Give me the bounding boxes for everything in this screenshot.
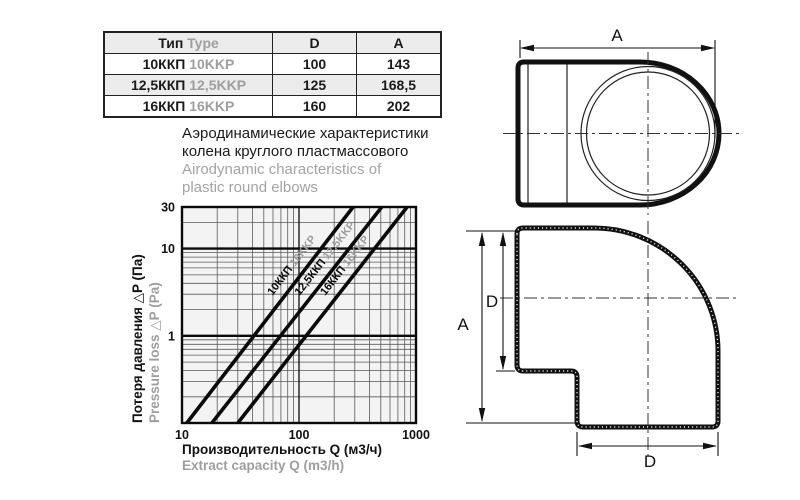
col-header-type: Тип Type — [104, 32, 273, 54]
dim-label-d: D — [486, 292, 498, 311]
d-cell: 125 — [273, 75, 357, 96]
type-en: 12,5KKP — [189, 77, 246, 93]
dim-label-a: A — [611, 26, 623, 45]
col-header-a: A — [357, 32, 442, 54]
type-dimensions-table: Тип Type D A 10ККП 10KKP 100 143 12,5ККП… — [103, 31, 442, 118]
elbow-side-view: A D D — [457, 221, 738, 471]
type-cell: 16ККП 16KKP — [104, 96, 273, 118]
elbow-side-view-outline — [517, 228, 718, 427]
dim-label-d: D — [644, 452, 656, 471]
x-axis-title-en: Extract capacity Q (m3/h) — [182, 458, 344, 473]
a-cell: 168,5 — [357, 75, 442, 96]
pressure-loss-chart: 10ККП 10KKP12,5ККП 12,5KKP16ККП 16KKP301… — [100, 190, 450, 490]
type-ru: 16ККП — [143, 98, 186, 114]
y-tick-label: 1 — [168, 329, 175, 343]
table-row: 10ККП 10KKP 100 143 — [104, 54, 441, 75]
x-tick-label: 100 — [289, 428, 310, 442]
x-tick-label: 1000 — [402, 428, 430, 442]
table-row: 16ККП 16KKP 160 202 — [104, 96, 441, 118]
chart-title: Аэродинамические характеристики колена к… — [182, 125, 428, 197]
elbow-top-view: A — [503, 26, 742, 215]
a-cell: 202 — [357, 96, 442, 118]
y-tick-label: 30 — [161, 201, 175, 215]
y-axis-title-en: Pressure loss △P (Pa) — [147, 282, 162, 423]
dimension-d-inlet: D — [486, 233, 515, 371]
type-en: 16KKP — [189, 98, 234, 114]
type-ru: 10ККП — [143, 56, 186, 72]
y-axis-title-ru: Потеря давления △P (Па) — [130, 254, 145, 423]
type-header-ru: Тип — [158, 35, 183, 51]
type-en: 10KKP — [189, 56, 234, 72]
type-header-en: Type — [187, 35, 219, 51]
dim-label-a: A — [457, 315, 469, 334]
a-cell: 143 — [357, 54, 442, 75]
chart-title-ru-2: колена круглого пластмассового — [182, 143, 428, 161]
type-cell: 12,5ККП 12,5KKP — [104, 75, 273, 96]
technical-drawings: A A D D — [450, 10, 760, 490]
x-tick-label: 10 — [175, 428, 189, 442]
d-cell: 100 — [273, 54, 357, 75]
chart-title-en-1: Airodynamic characteristics of — [182, 161, 428, 179]
page: Тип Type D A 10ККП 10KKP 100 143 12,5ККП… — [0, 0, 800, 500]
table-header-row: Тип Type D A — [104, 32, 441, 54]
y-tick-label: 10 — [161, 242, 175, 256]
d-cell: 160 — [273, 96, 357, 118]
type-ru: 12,5ККП — [131, 77, 185, 93]
chart-title-ru-1: Аэродинамические характеристики — [182, 125, 428, 143]
x-axis-title-ru: Производительность Q (м3/ч) — [182, 442, 382, 457]
type-cell: 10ККП 10KKP — [104, 54, 273, 75]
col-header-d: D — [273, 32, 357, 54]
table-row: 12,5ККП 12,5KKP 125 168,5 — [104, 75, 441, 96]
